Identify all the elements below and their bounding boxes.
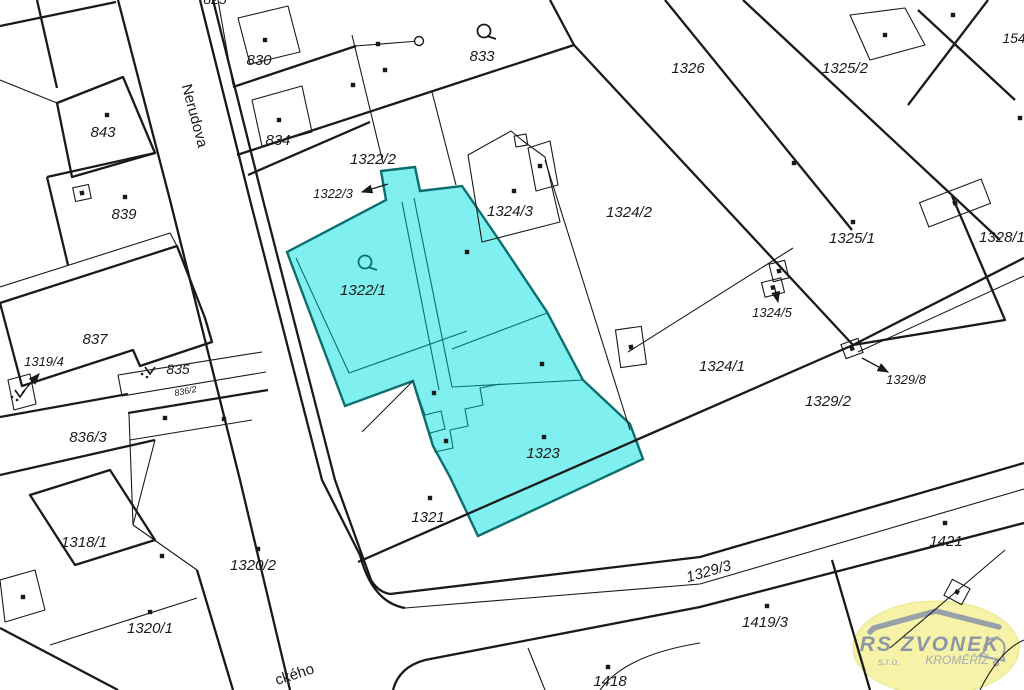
street-name-label: Nerudova	[178, 82, 211, 150]
building-dot-icon	[606, 665, 610, 669]
building-dot-icon	[160, 554, 164, 558]
building-dot-icon	[263, 38, 267, 42]
building-dot-icon	[123, 195, 127, 199]
parcel-label-837: 837	[82, 331, 108, 348]
parcel-label-1328-1: 1328/1	[979, 229, 1024, 246]
parcel-label-835: 835	[166, 361, 190, 377]
building-dot-icon	[222, 417, 226, 421]
logo-city: KROMĚŘÍŽ	[925, 652, 989, 667]
building-dot-icon	[542, 435, 546, 439]
parcel-label-1321: 1321	[411, 509, 444, 526]
parcel-label-1421: 1421	[929, 533, 962, 550]
parcel-label-1324-1: 1324/1	[699, 358, 745, 375]
parcel-label-1324-2: 1324/2	[606, 204, 653, 221]
parcel-label-836-2: 836/2	[173, 384, 197, 398]
parcel-label-1329-8: 1329/8	[886, 372, 927, 387]
building-dot-icon	[376, 42, 380, 46]
building-dot-icon	[432, 391, 436, 395]
parcel-label-839: 839	[111, 206, 137, 223]
building-dot-icon	[444, 439, 448, 443]
building-dot-icon	[21, 595, 25, 599]
building-dot-icon	[851, 220, 855, 224]
parcel-label-154: 154	[1002, 30, 1024, 46]
parcel-label-1320-1: 1320/1	[127, 620, 173, 637]
parcel-label-1322-3: 1322/3	[313, 186, 354, 201]
building-dot-icon	[351, 83, 355, 87]
small-structure-outline	[73, 184, 92, 201]
building-dot-icon	[1018, 116, 1022, 120]
cadastral-map: RS ZVONEK s.r.o. KROMĚŘÍŽ	[0, 0, 1024, 690]
parcel-label-1329-2: 1329/2	[805, 393, 852, 410]
label-arrow-icon	[775, 289, 778, 302]
building-dot-icon	[465, 250, 469, 254]
parcel-label-1322-2: 1322/2	[350, 151, 397, 168]
parcel-label-1324-3: 1324/3	[487, 203, 534, 220]
building-dot-icon	[538, 164, 542, 168]
building-dot-icon	[943, 521, 947, 525]
building-dot-icon	[883, 33, 887, 37]
building-dot-icon	[383, 68, 387, 72]
building-dot-icon	[105, 113, 109, 117]
building-dot-icon	[765, 604, 769, 608]
street-name-label: ckého	[273, 660, 316, 689]
building-dot-icon	[512, 189, 516, 193]
company-logo: RS ZVONEK s.r.o. KROMĚŘÍŽ	[853, 601, 1019, 690]
parcel-label-1419-3: 1419/3	[742, 614, 789, 631]
building-dot-icon	[428, 496, 432, 500]
parcel-label-1326: 1326	[671, 60, 705, 77]
boundary-point-icon	[415, 37, 424, 46]
building-dot-icon	[951, 13, 955, 17]
logo-suffix: s.r.o.	[878, 657, 900, 668]
parcel-label-830: 830	[246, 52, 272, 69]
small-structure-outline	[514, 134, 528, 147]
building-dot-icon	[163, 416, 167, 420]
building-dot-icon	[148, 610, 152, 614]
parcel-label-1322-1: 1322/1	[340, 282, 386, 299]
parcel-label-1325-2: 1325/2	[822, 60, 869, 77]
parcel-label-843: 843	[90, 124, 116, 141]
label-arrow-icon	[862, 358, 888, 372]
parcel-label-825: 825	[203, 0, 227, 7]
parcel-label-1323: 1323	[526, 445, 560, 462]
highlighted-parcel-area[interactable]	[287, 167, 643, 536]
parcel-label-834: 834	[265, 132, 290, 149]
parcel-label-1324-5: 1324/5	[752, 305, 793, 320]
cadastral-map-viewport: RS ZVONEK s.r.o. KROMĚŘÍŽ	[0, 0, 1024, 690]
parcel-label-833: 833	[469, 48, 495, 65]
building-dot-icon	[792, 161, 796, 165]
building-dot-icon	[540, 362, 544, 366]
parcel-label-1325-1: 1325/1	[829, 230, 875, 247]
terrain-mark-icon	[141, 367, 155, 378]
small-structure-outline	[615, 326, 646, 367]
well-icon	[478, 25, 497, 40]
building-dot-icon	[277, 118, 281, 122]
parcel-label-1319-4: 1319/4	[24, 354, 64, 369]
building-dot-icon	[256, 547, 260, 551]
parcel-label-836-3: 836/3	[69, 429, 107, 446]
parcel-label-1418: 1418	[593, 673, 627, 690]
parcel-label-1318-1: 1318/1	[61, 534, 107, 551]
parcel-label-1320-2: 1320/2	[230, 557, 277, 574]
